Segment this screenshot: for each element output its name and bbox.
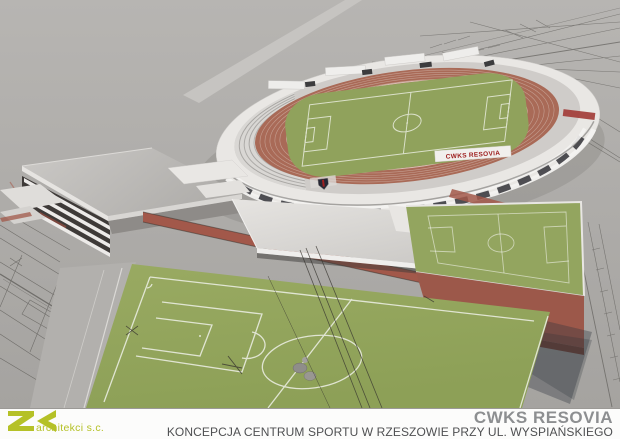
- project-subtitle: KONCEPCJA CENTRUM SPORTU W RZESZOWIE PRZ…: [167, 426, 613, 439]
- footer: architekci s.c. CWKS RESOVIA KONCEPCJA C…: [0, 408, 620, 439]
- logo-name: architekci s.c.: [36, 423, 116, 434]
- title-block: CWKS RESOVIA KONCEPCJA CENTRUM SPORTU W …: [167, 410, 613, 439]
- project-title: CWKS RESOVIA: [167, 410, 613, 426]
- zk-logo: architekci s.c.: [6, 410, 116, 434]
- architectural-render: CWKS RESOVIA: [0, 0, 620, 408]
